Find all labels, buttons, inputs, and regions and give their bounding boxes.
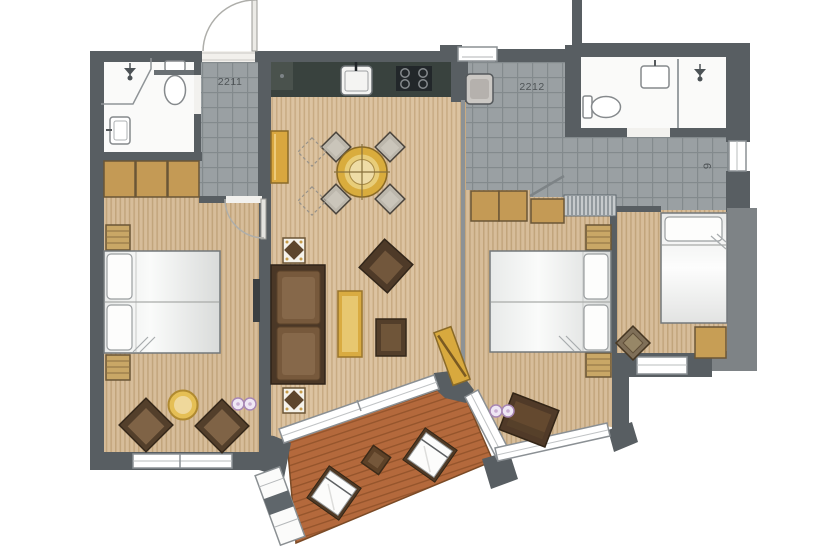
svg-text:9: 9 [702,163,714,169]
svg-text:2211: 2211 [218,76,243,88]
svg-text:2212: 2212 [519,81,544,93]
